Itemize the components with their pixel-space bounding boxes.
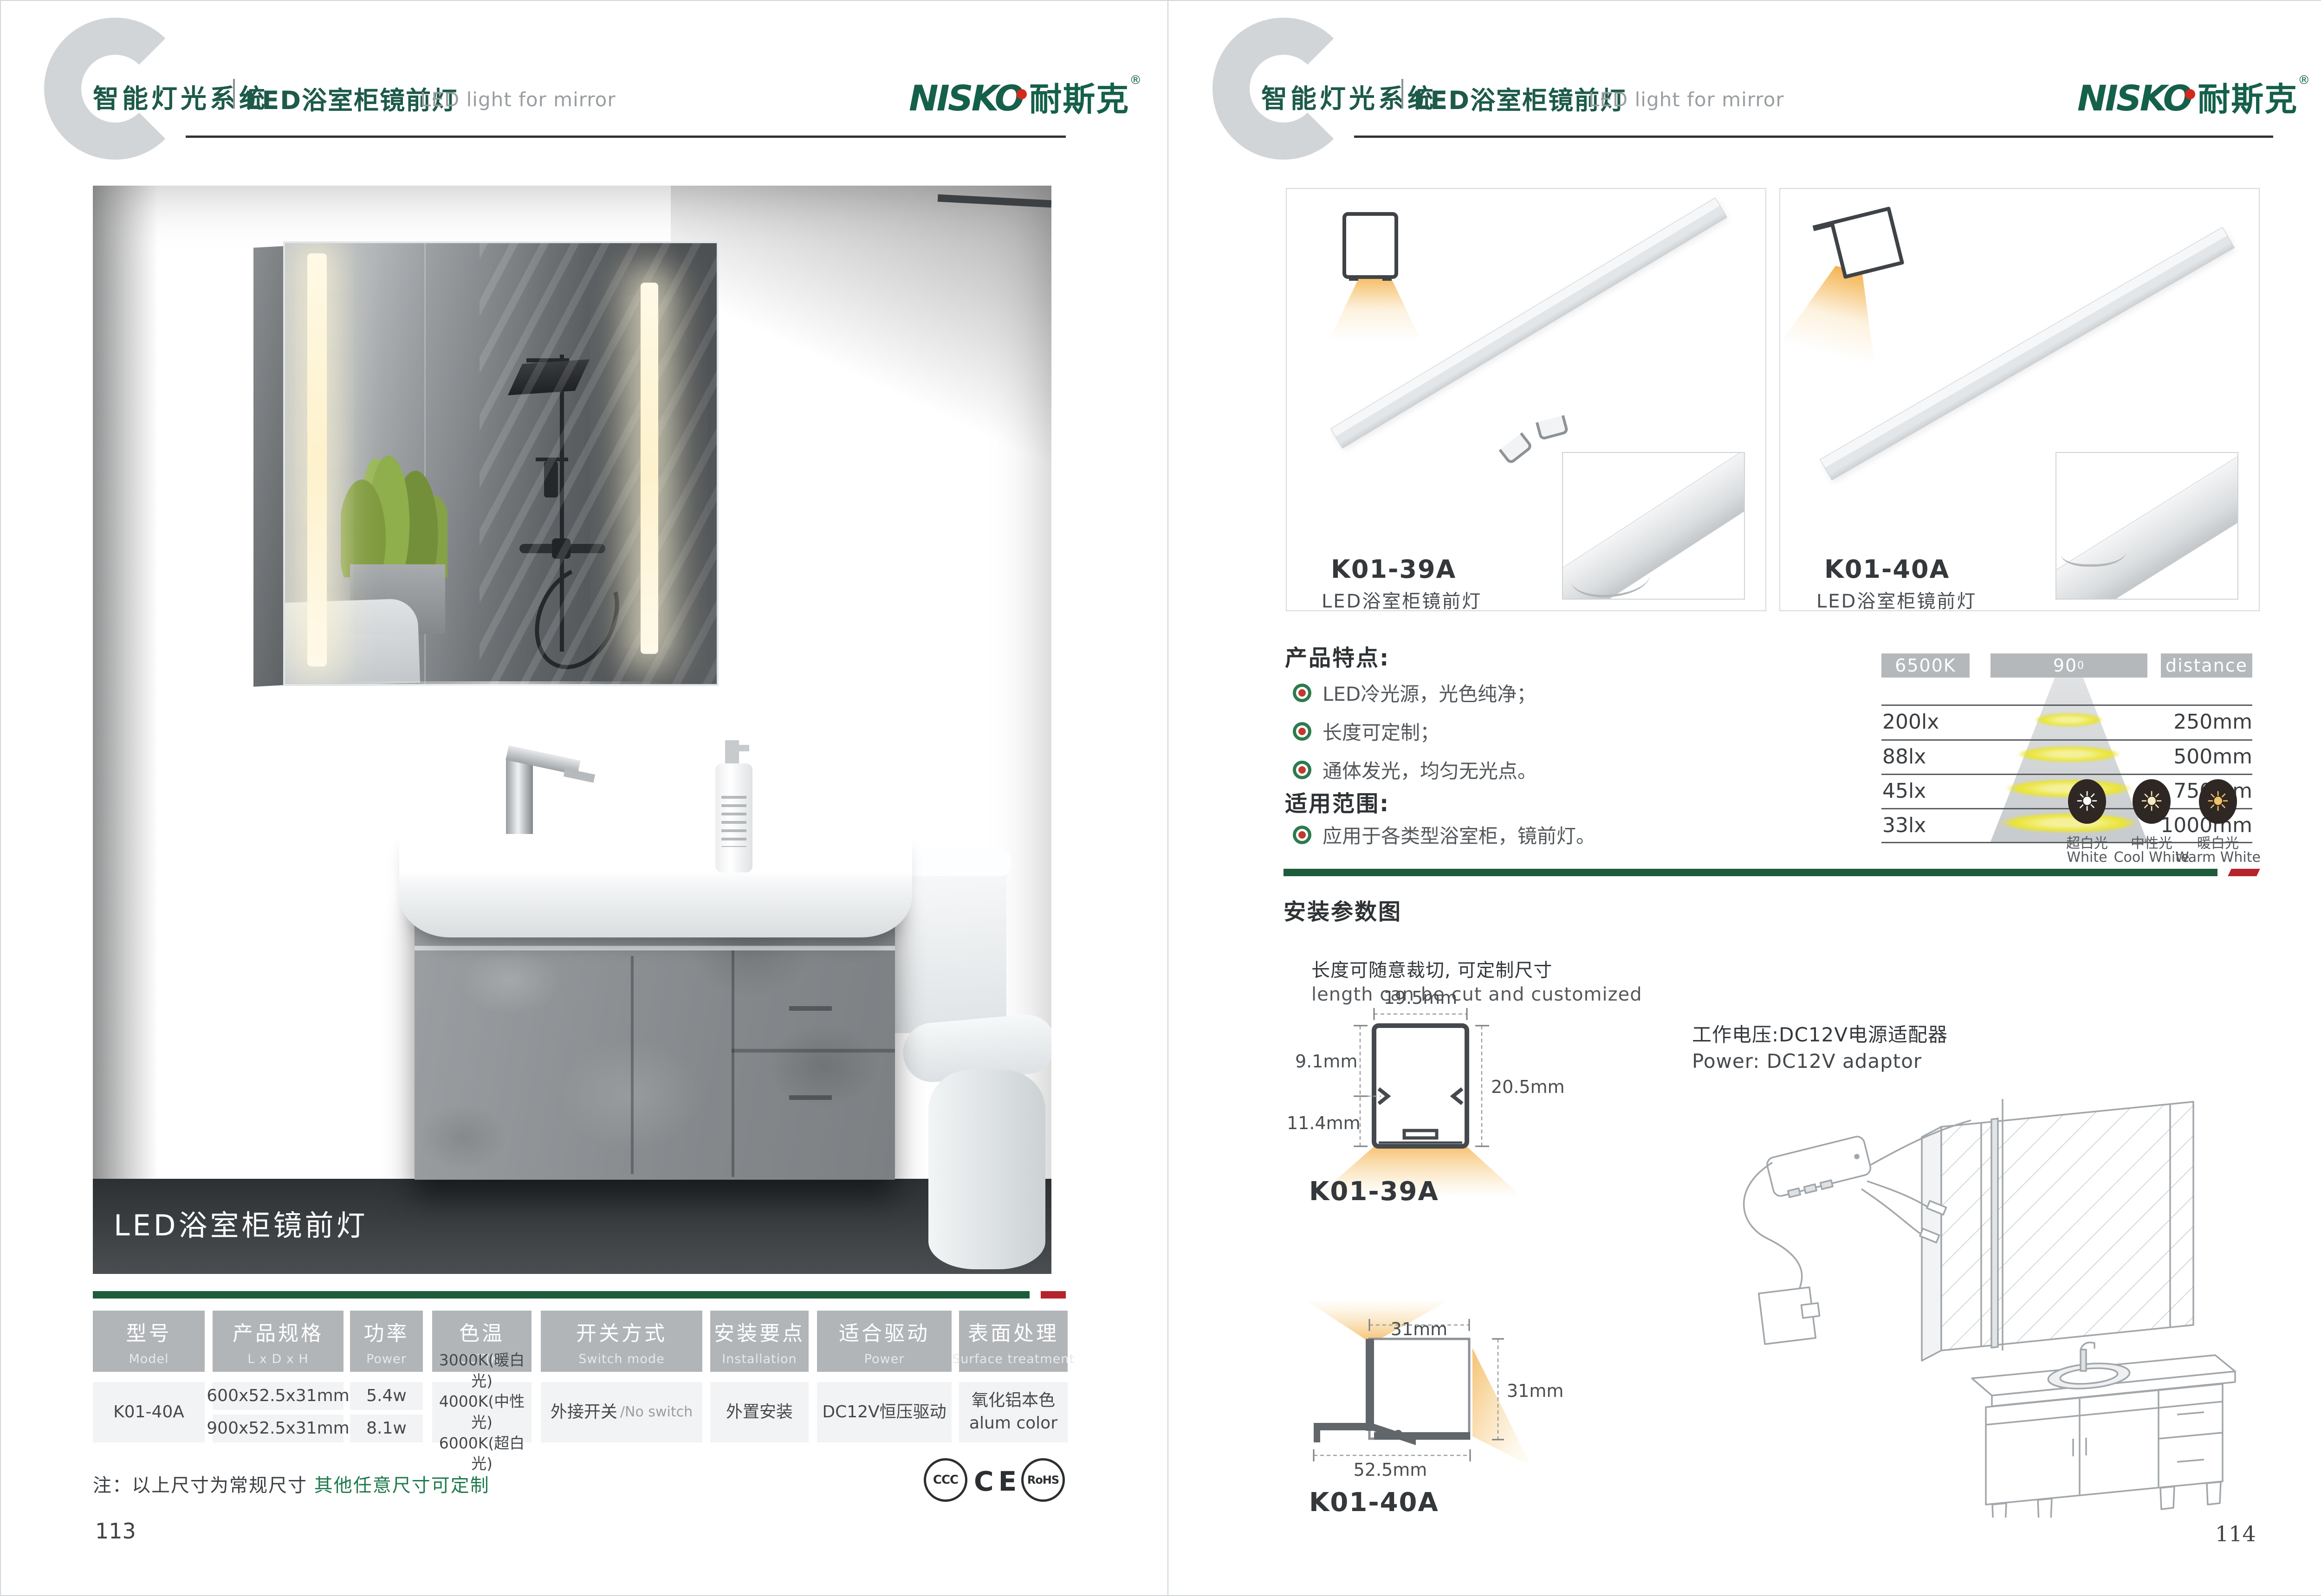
col-en: Power	[864, 1352, 905, 1366]
col-en: Surface treatment	[952, 1352, 1075, 1366]
switch-zh: 外接开关	[551, 1401, 617, 1424]
faucet-body	[506, 757, 533, 834]
col-header-driver: 适合驱动Power	[817, 1311, 952, 1372]
cell-switch: 外接开关 /No switch	[541, 1382, 702, 1442]
scope-item: 应用于各类型浴室柜，镜前灯。	[1293, 821, 1595, 849]
registered-mark: ®	[2298, 73, 2310, 87]
installation-illustration	[1713, 1072, 2302, 1518]
vanity-column-seam	[732, 950, 734, 1177]
cct-header: 6500K	[1881, 653, 1970, 678]
accent-bar-red	[1041, 1291, 1066, 1299]
cell-installation: 外置安装	[710, 1382, 809, 1442]
ce-certification-icon: CE	[974, 1466, 1021, 1497]
col-en: L x D x H	[247, 1352, 308, 1366]
registered-mark: ®	[1129, 73, 1141, 87]
header-rule	[1354, 136, 2273, 138]
col-header-model: 型号Model	[93, 1311, 205, 1372]
soap-bottle	[715, 763, 752, 872]
cell-cct: 3000K(暖白光) 4000K(中性光) 6000K(超白光)	[432, 1382, 532, 1442]
profile-flange	[1813, 220, 1835, 231]
rohs-certification-icon: RoHS	[1021, 1458, 1065, 1502]
dim-base-width: 52.5mm	[1344, 1460, 1437, 1480]
cell-power-1: 5.4w	[350, 1382, 423, 1410]
vanity-drawer-seam	[732, 1049, 895, 1053]
cct-option: 6000K(超白光)	[432, 1433, 532, 1474]
ccc-certification-icon: CCC	[924, 1458, 967, 1502]
power-wire	[1571, 558, 1650, 597]
nisko-logo: NISKO耐斯克®	[909, 73, 1141, 120]
drawer-handle-bottom	[789, 1095, 832, 1100]
bullet-target-icon	[1293, 722, 1311, 741]
col-en: Power	[366, 1352, 407, 1366]
drawer-handle-top	[789, 1006, 832, 1011]
bullet-target-icon	[1293, 826, 1311, 844]
brand-chinese: 耐斯克	[2198, 80, 2298, 118]
header-product-subtitle: LED light for mirror	[420, 88, 616, 111]
bathroom-photo: LED浴室柜镜前灯	[93, 186, 1051, 1274]
cct-option: 4000K(中性光)	[432, 1391, 532, 1433]
under-cabinet-glow	[269, 681, 733, 737]
lux-label: 45lx	[1882, 779, 1926, 803]
col-header-spec: 产品规格L x D x H	[213, 1311, 344, 1372]
detail-bar	[2055, 452, 2238, 600]
light-glow	[1780, 257, 1896, 366]
header-separator	[233, 79, 235, 109]
product-name: LED浴室柜镜前灯	[1816, 586, 1977, 611]
note-highlight: 其他任意尺寸可定制	[314, 1475, 490, 1496]
col-zh: 安装要点	[714, 1317, 805, 1346]
detail-inset	[2055, 452, 2238, 600]
col-zh: 型号	[126, 1317, 172, 1346]
white-light-icon: ☀	[2068, 779, 2106, 824]
col-zh: 表面处理	[968, 1317, 1059, 1346]
warm-white-light-icon: ☀	[2199, 779, 2237, 824]
switch-en: /No switch	[620, 1403, 693, 1422]
col-zh: 适合驱动	[839, 1317, 930, 1346]
feature-text: LED冷光源，光色纯净；	[1323, 678, 1536, 707]
brand-wordmark: NISKO	[909, 78, 1023, 119]
scope-title: 适用范围:	[1285, 785, 1390, 818]
distance-line	[1881, 739, 2252, 741]
mounting-clip-icon	[1536, 415, 1569, 440]
feature-item: 通体发光，均匀无光点。	[1293, 756, 1537, 784]
size-note: 注：以上尺寸为常规尺寸 其他任意尺寸可定制	[93, 1470, 490, 1497]
cell-power-2: 8.1w	[350, 1415, 423, 1442]
light-pool-1	[2023, 711, 2115, 729]
mounting-clip-icon	[1498, 433, 1533, 465]
distance-label: 250mm	[2159, 710, 2252, 734]
profile-drawing-k01-39a	[1290, 998, 1523, 1197]
product-card-k01-39a: K01-39A LED浴室柜镜前灯	[1286, 188, 1766, 611]
page-number-right: 114	[2215, 1521, 2256, 1546]
profile-cross-section-icon	[1342, 212, 1398, 279]
col-zh: 产品规格	[233, 1317, 324, 1346]
header-system-title: 智能灯光系统	[1261, 78, 1437, 116]
power-note-en: Power: DC12V adaptor	[1692, 1050, 1922, 1073]
features-title: 产品特点:	[1285, 640, 1390, 672]
cut-note-zh: 长度可随意裁切, 可定制尺寸	[1311, 955, 1552, 982]
page-gutter	[1167, 0, 1168, 1596]
distance-line	[1881, 704, 2252, 706]
vanity-drawer-rail	[415, 946, 895, 950]
cell-size-1: 600x52.5x31mm	[213, 1382, 344, 1410]
cell-size-2: 900x52.5x31mm	[213, 1415, 344, 1442]
beam-angle-header: 900	[1990, 653, 2147, 678]
lux-label: 200lx	[1882, 710, 1939, 734]
mirror-cabinet	[283, 241, 719, 686]
dim-total-height: 20.5mm	[1491, 1077, 1565, 1097]
col-header-installation: 安装要点Installation	[710, 1311, 809, 1372]
cabinet-side-panel	[253, 246, 284, 686]
feature-item: LED冷光源，光色纯净；	[1293, 678, 1536, 707]
detail-inset	[1562, 452, 1745, 600]
brand-red-dot-icon	[1017, 89, 1027, 99]
header-system-title: 智能灯光系统	[93, 78, 268, 116]
col-header-power: 功率Power	[350, 1311, 423, 1372]
header-separator	[1401, 79, 1403, 109]
light-pool-2	[1999, 743, 2139, 765]
swatch-label-en: Warm White	[2167, 849, 2269, 866]
dim-width: 31mm	[1373, 1319, 1465, 1339]
angle-value: 90	[2053, 655, 2077, 676]
col-header-surface: 表面处理Surface treatment	[959, 1311, 1068, 1372]
dim-top-height: 9.1mm	[1295, 1051, 1355, 1072]
distance-line	[1881, 808, 2252, 809]
distance-label: 500mm	[2159, 745, 2252, 769]
led-strip-left	[307, 253, 327, 666]
dim-height: 31mm	[1507, 1381, 1563, 1401]
bullet-target-icon	[1293, 761, 1311, 779]
col-en: Installation	[722, 1352, 797, 1366]
profile-model-label: K01-40A	[1309, 1487, 1439, 1518]
nisko-logo: NISKO耐斯克®	[2077, 73, 2310, 120]
soap-pump-spout	[736, 745, 749, 751]
col-zh: 色温	[459, 1317, 505, 1346]
brand-chinese: 耐斯克	[1029, 80, 1129, 118]
feature-item: 长度可定制；	[1293, 717, 1439, 745]
col-header-switch: 开关方式Switch mode	[541, 1311, 702, 1372]
catalog-spread: 智能灯光系统 LED浴室柜镜前灯 LED light for mirror NI…	[0, 0, 2321, 1596]
feature-text: 长度可定制；	[1323, 717, 1439, 745]
lux-label: 33lx	[1882, 814, 1926, 837]
product-card-k01-40a: K01-40A LED浴室柜镜前灯	[1779, 188, 2260, 611]
cell-driver: DC12V恒压驱动	[817, 1382, 952, 1442]
distance-line	[1881, 774, 2252, 775]
note-label: 注：以上尺寸为常规尺寸	[93, 1475, 314, 1496]
photo-caption: LED浴室柜镜前灯	[114, 1202, 368, 1244]
cool-white-light-icon: ☀	[2133, 779, 2171, 824]
bullet-target-icon	[1293, 684, 1311, 702]
cell-model: K01-40A	[93, 1382, 205, 1442]
product-model: K01-40A	[1824, 555, 1950, 584]
brand-red-dot-icon	[2185, 89, 2195, 99]
lux-label: 88lx	[1882, 745, 1926, 769]
header-rule	[186, 136, 1066, 138]
product-name: LED浴室柜镜前灯	[1322, 586, 1482, 611]
col-zh: 开关方式	[576, 1317, 667, 1346]
wall-corner-shadow	[93, 186, 158, 1179]
feature-text: 通体发光，均匀无光点。	[1323, 756, 1537, 784]
power-note-zh: 工作电压:DC12V电源适配器	[1692, 1019, 1948, 1047]
col-en: Model	[129, 1352, 169, 1366]
toilet-base	[928, 1070, 1045, 1269]
dim-width: 19.5mm	[1374, 988, 1467, 1008]
distance-header: distance	[2161, 653, 2252, 678]
install-title: 安装参数图	[1284, 893, 1402, 926]
angled-profile-icon	[1830, 207, 1905, 279]
page-number-left: 113	[95, 1518, 136, 1544]
led-strip-right	[641, 283, 658, 654]
accent-bar-green	[1284, 869, 2217, 876]
cct-option: 3000K(暖白光)	[432, 1350, 532, 1391]
dim-bottom-height: 11.4mm	[1287, 1113, 1355, 1133]
surface-en: alum color	[969, 1412, 1057, 1435]
accent-bar-green	[93, 1291, 1030, 1299]
wash-basin	[399, 826, 912, 937]
profile-model-label: K01-39A	[1309, 1176, 1439, 1207]
cell-surface: 氧化铝本色 alum color	[959, 1382, 1068, 1442]
product-model: K01-39A	[1331, 555, 1456, 584]
col-zh: 功率	[364, 1317, 409, 1346]
vanity-door-seam	[631, 956, 634, 1174]
angle-sup: 0	[2077, 660, 2085, 672]
light-glow	[1329, 271, 1421, 341]
scope-text: 应用于各类型浴室柜，镜前灯。	[1323, 821, 1595, 849]
soap-bottle-label	[721, 796, 746, 847]
power-wire	[2061, 536, 2126, 567]
header-product-subtitle: LED light for mirror	[1588, 88, 1784, 111]
accent-bar-red	[2228, 869, 2260, 876]
ceiling-shadow	[671, 186, 1051, 520]
soap-pump	[725, 740, 739, 766]
col-en: Switch mode	[578, 1352, 664, 1366]
brand-wordmark: NISKO	[2077, 78, 2191, 119]
vanity-cabinet	[415, 896, 895, 1180]
surface-zh: 氧化铝本色	[972, 1389, 1055, 1412]
